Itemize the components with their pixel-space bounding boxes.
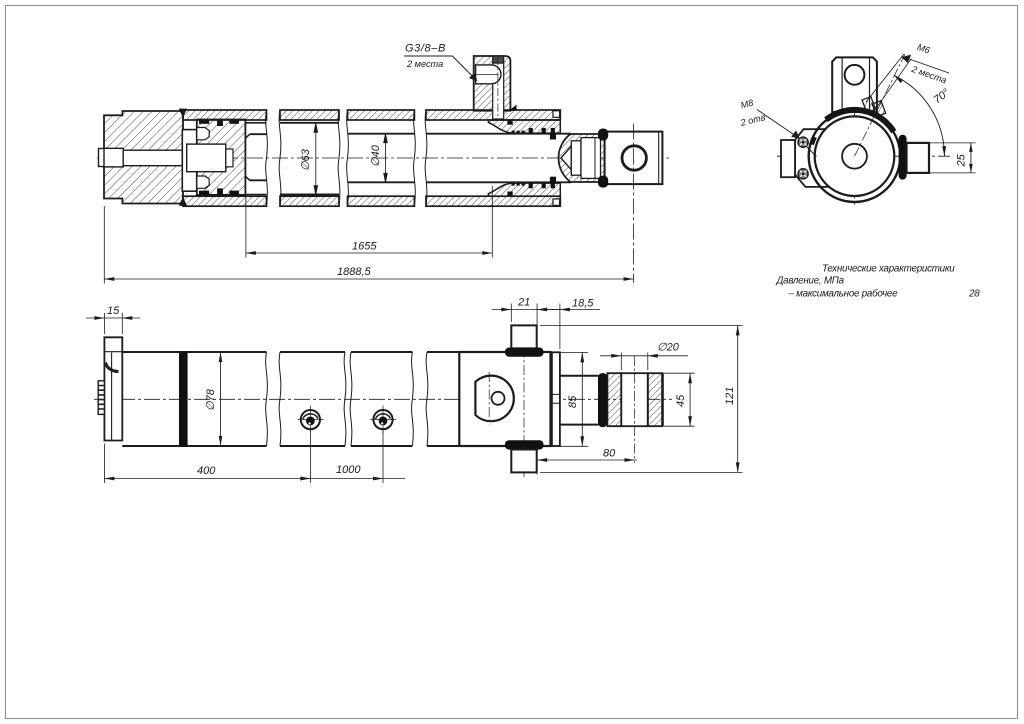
svg-text:80: 80 bbox=[603, 448, 616, 460]
svg-text:Давление, МПа: Давление, МПа bbox=[776, 276, 845, 287]
svg-text:21: 21 bbox=[517, 297, 530, 309]
svg-text:25: 25 bbox=[956, 153, 968, 167]
svg-text:∅63: ∅63 bbox=[300, 148, 312, 171]
svg-text:G3/8–B: G3/8–B bbox=[405, 43, 446, 55]
svg-text:18,5: 18,5 bbox=[572, 298, 594, 310]
svg-text:Технические характеристики: Технические характеристики bbox=[822, 264, 955, 275]
svg-text:∅78: ∅78 bbox=[205, 388, 217, 411]
svg-text:∅20: ∅20 bbox=[657, 342, 680, 354]
svg-text:28: 28 bbox=[968, 289, 980, 300]
svg-text:1888,5: 1888,5 bbox=[337, 266, 372, 278]
svg-text:400: 400 bbox=[197, 465, 216, 477]
svg-text:15: 15 bbox=[107, 305, 120, 317]
svg-text:2 места: 2 места bbox=[406, 59, 443, 69]
svg-text:1000: 1000 bbox=[336, 464, 361, 476]
svg-text:121: 121 bbox=[724, 387, 736, 405]
svg-text:1655: 1655 bbox=[352, 241, 377, 253]
svg-text:45: 45 bbox=[675, 394, 687, 407]
svg-text:85: 85 bbox=[567, 395, 579, 408]
svg-text:– максимальное рабочее: – максимальное рабочее bbox=[788, 289, 899, 300]
svg-text:∅40: ∅40 bbox=[370, 144, 382, 167]
